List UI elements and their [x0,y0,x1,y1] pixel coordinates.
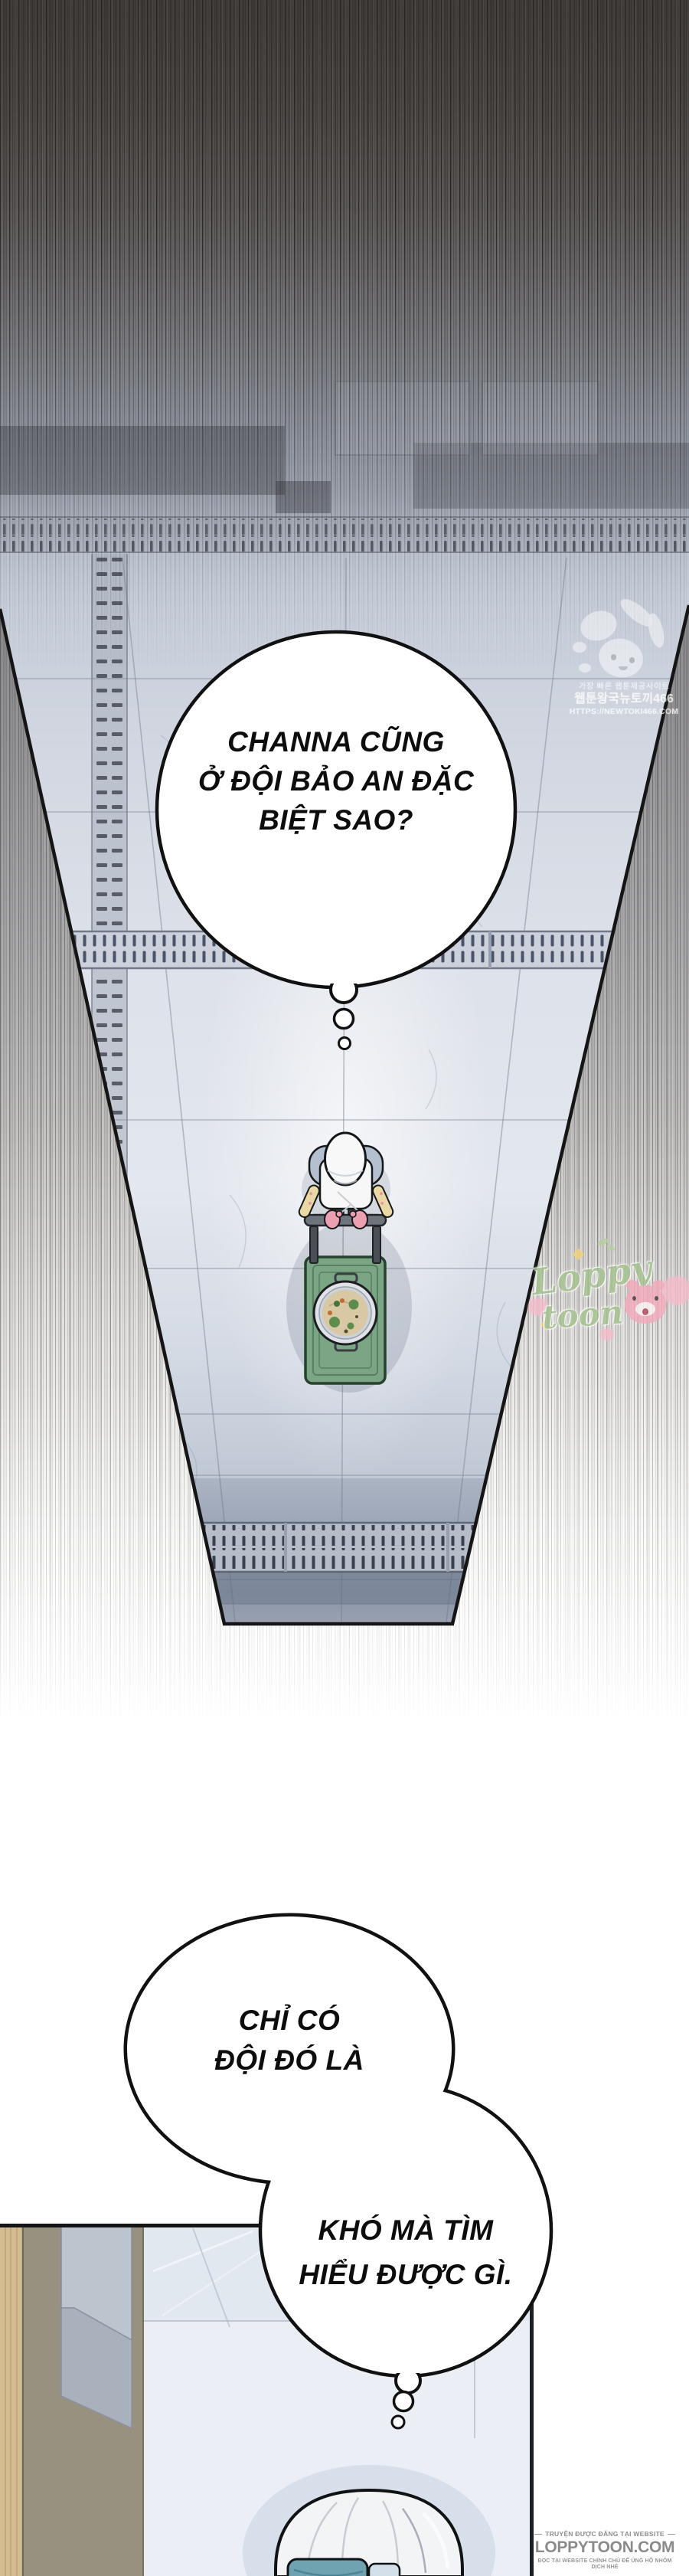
thought-bubble-3-text: KHÓ MÀ TÌM HIỂU ĐƯỢC GÌ. [253,2208,559,2297]
webtoon-page: 가장 빠른 웹툰제공사이트 웹툰왕국뉴토끼466 HTTPS://NEWTOKI… [0,0,689,2576]
thought-dot [335,1010,354,1029]
thought-bubble-1 [157,632,515,1049]
thought-bubble-2-text: CHỈ CÓ ĐỘI ĐÓ LÀ [136,2001,442,2080]
bubble2-line1: CHỈ CÓ [136,2001,442,2041]
thought-dot [339,1038,351,1049]
bubble1-line3: BIỆT SAO? [183,800,489,840]
thought-dot [394,2392,413,2411]
bubble3-line1: KHÓ MÀ TÌM [253,2208,559,2253]
thought-dot [392,2416,404,2428]
bubble1-line1: CHANNA CŨNG [183,722,489,761]
bubble2-line2: ĐỘI ĐÓ LÀ [136,2041,442,2080]
thought-bubble-2-3 [127,1916,551,2428]
thought-bubbles-art [0,0,689,2576]
bubble3-line2: HIỂU ĐƯỢC GÌ. [253,2253,559,2297]
bubble1-line2: Ở ĐỘI BẢO AN ĐẶC [183,761,489,800]
thought-bubble-1-text: CHANNA CŨNG Ở ĐỘI BẢO AN ĐẶC BIỆT SAO? [183,722,489,840]
